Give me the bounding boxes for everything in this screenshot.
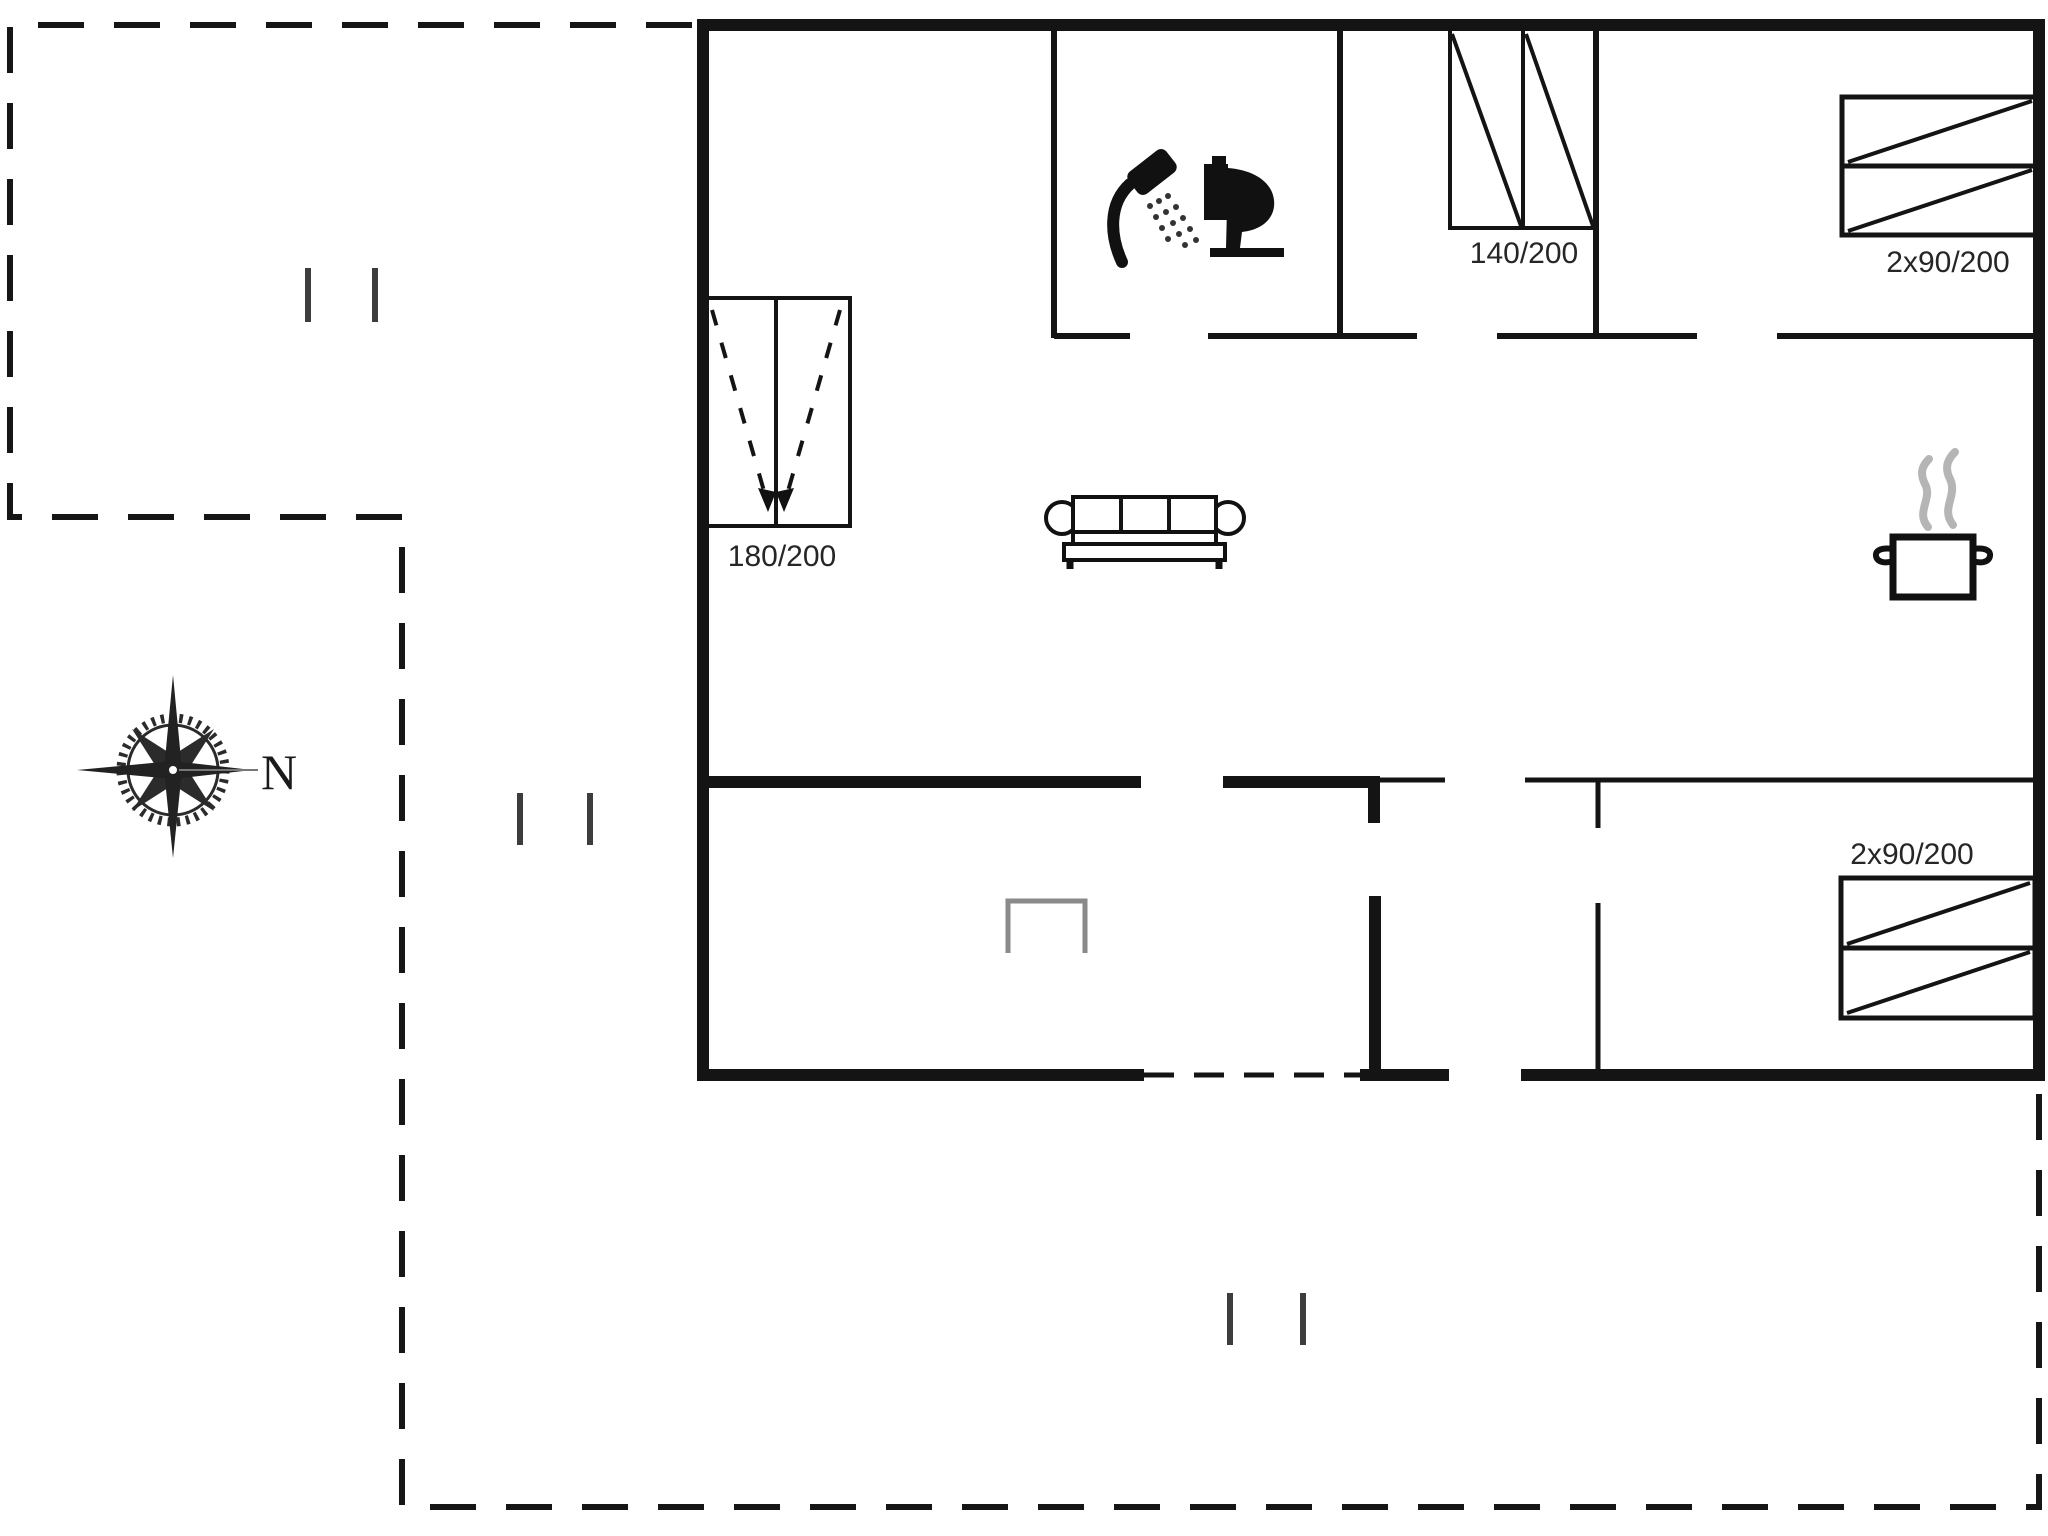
terrace-dashed-outline <box>10 25 2039 1507</box>
bed-fold-arrow <box>758 488 776 512</box>
floor-plan-canvas: 180/200 140/200 2x90/200 <box>0 0 2048 1536</box>
north-label: N <box>261 744 297 800</box>
niche-icon <box>1008 901 1085 953</box>
compass-center <box>168 765 178 775</box>
bed-diagonal <box>1847 883 2030 944</box>
bed-fold-line <box>712 310 766 498</box>
bed-140x200 <box>1450 28 1595 228</box>
pot-body <box>1893 537 1973 597</box>
compass-rose-icon <box>77 675 258 858</box>
bed-diagonal <box>1848 170 2032 231</box>
bed-180x200 <box>702 298 850 526</box>
cooking-pot-icon <box>1876 452 1990 597</box>
toilet-cistern <box>1204 164 1228 220</box>
pot-steam <box>1922 452 1955 527</box>
house-interior-walls-top <box>1054 25 2036 338</box>
bed-2x90x200-bottom <box>1841 878 2035 1018</box>
bed-label-2x90x200-bottom: 2x90/200 <box>1850 838 1973 871</box>
bed-diagonal <box>1526 34 1593 226</box>
bed-diagonal <box>1452 34 1521 226</box>
terrace-step-marks <box>308 268 1303 1345</box>
toilet-bowl <box>1226 168 1274 248</box>
sofa-base <box>1064 544 1225 560</box>
bed-2x90x200-top <box>1842 97 2037 235</box>
shower-head <box>1124 146 1179 198</box>
shower-spray <box>1147 193 1199 248</box>
terrace-boundary <box>10 25 2039 1507</box>
toilet-base <box>1210 248 1284 257</box>
bed-fold-line <box>786 310 840 498</box>
house-interior-walls-lower <box>697 780 2036 1080</box>
bed-fold-arrow <box>776 488 794 512</box>
bed-diagonal <box>1847 952 2030 1013</box>
bed-label-180x200: 180/200 <box>728 540 836 573</box>
bed-label-140x200: 140/200 <box>1470 237 1578 270</box>
sofa-seats <box>1073 497 1216 532</box>
sofa-icon <box>1046 497 1244 569</box>
toilet-icon <box>1204 156 1284 257</box>
shower-arm <box>1113 184 1130 262</box>
bed-label-2x90x200-top: 2x90/200 <box>1886 246 2009 279</box>
shower-icon <box>1113 146 1199 262</box>
bed-diagonal <box>1848 101 2032 162</box>
